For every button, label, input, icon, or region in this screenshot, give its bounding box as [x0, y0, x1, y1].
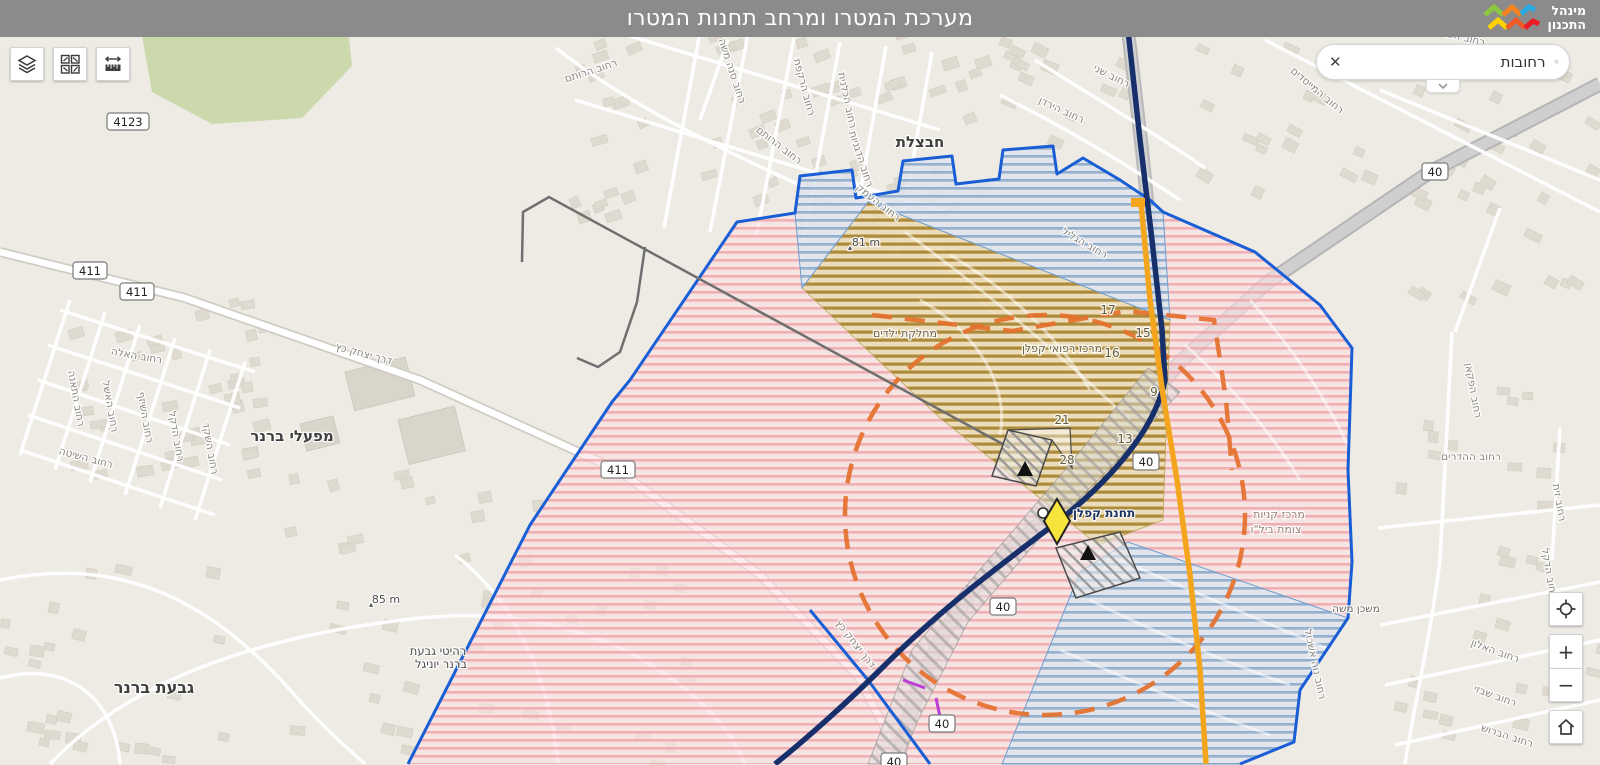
building	[46, 714, 58, 724]
layers-button[interactable]	[10, 47, 44, 81]
map-label: ▴	[369, 600, 373, 609]
home-icon	[1555, 716, 1577, 738]
logo-text: מינהל התכנון	[1548, 4, 1586, 33]
building	[1423, 420, 1433, 431]
map-label: 85 m	[372, 593, 400, 606]
route-shield-number: 40	[1428, 165, 1443, 179]
map-label: 81 m	[852, 236, 880, 249]
basemap-gallery-icon	[59, 53, 81, 75]
route-shield: 40	[990, 598, 1016, 615]
building	[290, 725, 306, 735]
parcel-number: 28	[1059, 453, 1074, 467]
search-collapse-tab[interactable]	[1426, 80, 1460, 93]
route-shield: 411	[73, 262, 107, 279]
route-shield: 411	[120, 283, 154, 300]
planning-administration-logo-icon	[1483, 2, 1541, 34]
route-shield-number: 411	[126, 285, 148, 299]
map-label: מרכז רפואי קפלן	[1022, 342, 1102, 355]
map-label: צומת ביל"ו	[1251, 523, 1302, 536]
building	[1508, 463, 1522, 472]
building	[137, 465, 155, 477]
map-label: מחלקת ילדים	[873, 327, 937, 340]
building	[249, 357, 260, 367]
locate-crosshair-icon	[1555, 598, 1577, 620]
route-shield-number: 411	[607, 463, 629, 477]
building	[285, 527, 297, 538]
map-label: מרכז קניות	[1253, 508, 1305, 521]
building	[206, 567, 221, 580]
parcel-number: 21	[1054, 413, 1069, 427]
building	[1497, 387, 1510, 395]
page-title: מערכת המטרו ומרחב תחנות המטרו	[627, 6, 973, 31]
parcel-number: 13	[1117, 432, 1132, 446]
parcel-number: 16	[1104, 346, 1119, 360]
parcel-number: 17	[1100, 303, 1115, 317]
parcel-number: 15	[1135, 326, 1150, 340]
map-label: ברנר יוניגל	[415, 657, 467, 671]
search-box: ✕	[1316, 44, 1570, 80]
building	[1428, 431, 1439, 443]
zoom-in-label: +	[1558, 642, 1575, 662]
route-shield-number: 4123	[113, 115, 142, 129]
route-shield-number: 40	[1139, 455, 1154, 469]
basemap-gallery-button[interactable]	[53, 47, 87, 81]
building	[471, 510, 485, 523]
route-shield-number: 40	[935, 717, 950, 731]
zoom-out-button[interactable]: −	[1549, 668, 1583, 702]
route-shield-number: 411	[79, 264, 101, 278]
map-canvas[interactable]: 41234114114114040404040 רחוב הרותםרחוב ס…	[0, 0, 1600, 765]
route-shield: 40	[929, 715, 955, 732]
building	[1516, 683, 1528, 694]
measure-ruler-icon	[102, 53, 124, 75]
map-label: רהיטי גבעת	[410, 644, 466, 658]
building	[336, 601, 349, 610]
logo: מינהל התכנון	[1483, 2, 1586, 34]
search-clear-button[interactable]: ✕	[1327, 53, 1344, 71]
route-shield: 40	[1133, 453, 1159, 470]
route-shield: 40	[881, 753, 907, 765]
route-shield: 40	[1422, 163, 1448, 180]
building	[48, 602, 60, 614]
building	[0, 619, 10, 629]
route-shield-number: 40	[996, 600, 1011, 614]
building	[1507, 397, 1519, 406]
building	[245, 329, 257, 342]
search-icon	[1554, 52, 1559, 72]
building	[240, 300, 255, 310]
app-root: 41234114114114040404040 רחוב הרותםרחוב ס…	[0, 0, 1600, 765]
parcel-number: 9	[1150, 385, 1158, 399]
building	[1396, 482, 1407, 494]
map-label: ▴	[848, 243, 852, 252]
map-label: מפעלי ברנר	[250, 427, 333, 445]
logo-line1: מינהל	[1548, 4, 1586, 18]
layers-icon	[16, 53, 38, 75]
map-label: רחוב ההדרים	[1441, 451, 1501, 463]
building	[241, 382, 253, 393]
building	[478, 491, 493, 504]
header-bar: מערכת המטרו ומרחב תחנות המטרו מינהל התכנ…	[0, 0, 1600, 37]
building	[369, 693, 380, 703]
building	[1537, 468, 1551, 479]
map-label: משכן משה	[1332, 603, 1380, 615]
home-extent-button[interactable]	[1549, 710, 1583, 744]
building	[44, 730, 60, 740]
logo-line2: התכנון	[1548, 18, 1586, 32]
chevron-down-icon	[1437, 82, 1449, 90]
building	[253, 398, 268, 408]
building	[1522, 392, 1533, 400]
locate-button[interactable]	[1549, 592, 1583, 626]
route-shield: 411	[601, 461, 635, 478]
building	[289, 473, 300, 484]
search-input[interactable]	[1350, 52, 1548, 72]
route-shield: 4123	[107, 113, 149, 130]
map-label: גבעת ברנר	[114, 678, 194, 697]
building	[30, 645, 45, 657]
zoom-in-button[interactable]: +	[1549, 634, 1583, 668]
building	[44, 642, 55, 651]
zoom-out-label: −	[1558, 675, 1575, 695]
map-label: חבצלת	[896, 133, 945, 151]
search-area: ✕	[1316, 44, 1570, 93]
building	[162, 755, 175, 763]
route-shield-number: 40	[887, 755, 902, 765]
measure-button[interactable]	[96, 47, 130, 81]
station-label: תחנת קפלן	[1073, 506, 1135, 520]
